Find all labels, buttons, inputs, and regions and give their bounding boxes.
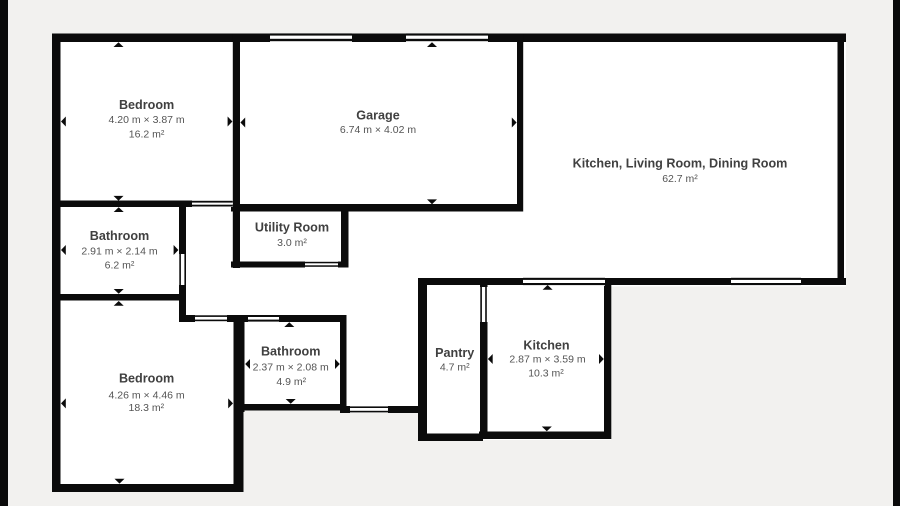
svg-text:6.2 m²: 6.2 m² xyxy=(105,259,135,271)
svg-text:4.9 m²: 4.9 m² xyxy=(276,376,306,388)
svg-text:62.7 m²: 62.7 m² xyxy=(662,173,698,185)
svg-text:Bedroom: Bedroom xyxy=(119,371,174,385)
svg-text:2.91 m × 2.14 m: 2.91 m × 2.14 m xyxy=(81,246,157,258)
svg-text:3.0 m²: 3.0 m² xyxy=(277,237,307,249)
svg-text:Bathroom: Bathroom xyxy=(90,229,149,243)
svg-text:Garage: Garage xyxy=(356,108,399,122)
svg-text:6.74 m × 4.02 m: 6.74 m × 4.02 m xyxy=(340,124,416,136)
svg-text:18.3 m²: 18.3 m² xyxy=(128,402,164,414)
svg-text:4.7 m²: 4.7 m² xyxy=(440,361,470,373)
svg-text:2.87 m × 3.59 m: 2.87 m × 3.59 m xyxy=(509,354,585,366)
svg-text:16.2 m²: 16.2 m² xyxy=(129,129,165,141)
svg-text:Pantry: Pantry xyxy=(435,346,474,360)
svg-text:Kitchen: Kitchen xyxy=(523,339,569,353)
svg-text:Bathroom: Bathroom xyxy=(261,345,320,359)
svg-text:Utility Room: Utility Room xyxy=(255,220,329,234)
svg-text:10.3 m²: 10.3 m² xyxy=(528,368,564,380)
svg-text:2.37 m × 2.08 m: 2.37 m × 2.08 m xyxy=(253,361,329,373)
svg-text:Bedroom: Bedroom xyxy=(119,98,174,112)
svg-text:Kitchen, Living Room, Dining R: Kitchen, Living Room, Dining Room xyxy=(573,157,788,171)
svg-text:4.26 m × 4.46 m: 4.26 m × 4.46 m xyxy=(109,389,185,401)
svg-text:4.20 m × 3.87 m: 4.20 m × 3.87 m xyxy=(109,114,185,126)
